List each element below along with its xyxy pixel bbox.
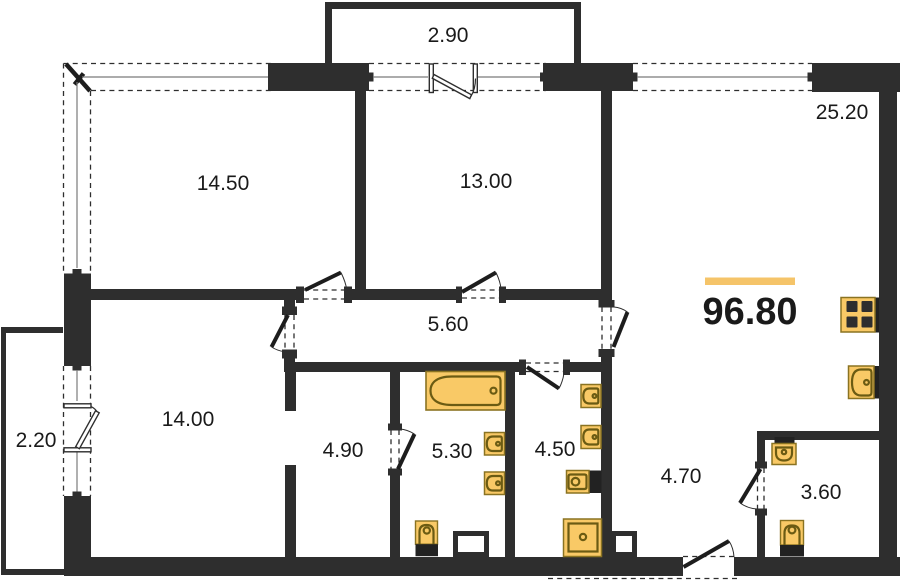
svg-text:5.60: 5.60: [428, 313, 469, 336]
svg-text:2.90: 2.90: [428, 24, 469, 47]
svg-text:13.00: 13.00: [460, 170, 513, 193]
svg-text:14.50: 14.50: [197, 172, 250, 195]
svg-text:25.20: 25.20: [816, 101, 869, 124]
svg-text:14.00: 14.00: [162, 408, 215, 431]
svg-text:2.20: 2.20: [16, 429, 57, 452]
svg-text:5.30: 5.30: [432, 440, 473, 463]
svg-text:96.80: 96.80: [702, 291, 797, 333]
svg-text:4.70: 4.70: [661, 465, 702, 488]
svg-text:3.60: 3.60: [801, 481, 842, 504]
svg-text:4.50: 4.50: [535, 438, 576, 461]
svg-text:4.90: 4.90: [323, 439, 364, 462]
